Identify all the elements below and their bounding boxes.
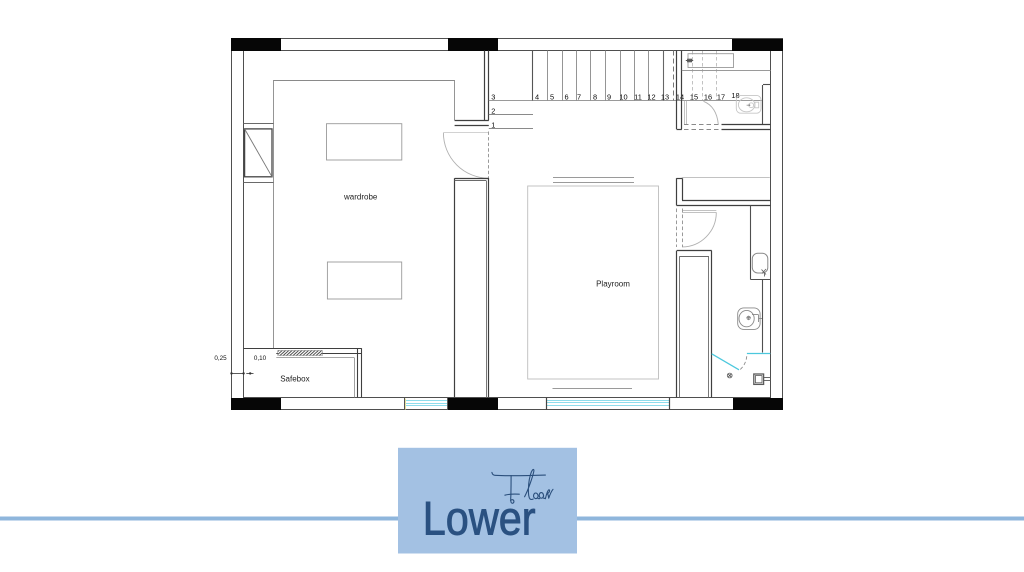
svg-text:11: 11 <box>634 93 642 102</box>
svg-text:0,10: 0,10 <box>254 355 267 362</box>
svg-text:wardrobe: wardrobe <box>343 193 378 202</box>
svg-text:4: 4 <box>535 93 539 102</box>
svg-text:12: 12 <box>647 93 655 102</box>
svg-text:Playroom: Playroom <box>596 280 630 289</box>
svg-text:Lower: Lower <box>423 493 536 545</box>
svg-text:14: 14 <box>676 93 684 102</box>
svg-text:17: 17 <box>717 93 725 102</box>
svg-text:16: 16 <box>704 93 712 102</box>
svg-text:Safebox: Safebox <box>280 375 309 384</box>
svg-text:7: 7 <box>577 93 581 102</box>
svg-text:2: 2 <box>491 107 495 116</box>
svg-text:9: 9 <box>607 93 611 102</box>
svg-text:10: 10 <box>619 93 627 102</box>
svg-text:3: 3 <box>491 93 495 102</box>
svg-text:13: 13 <box>661 93 669 102</box>
svg-text:15: 15 <box>690 93 698 102</box>
svg-text:8: 8 <box>593 93 597 102</box>
svg-text:5: 5 <box>550 93 554 102</box>
svg-text:6: 6 <box>564 93 568 102</box>
svg-text:1: 1 <box>491 121 495 130</box>
svg-text:0,25: 0,25 <box>214 355 227 362</box>
